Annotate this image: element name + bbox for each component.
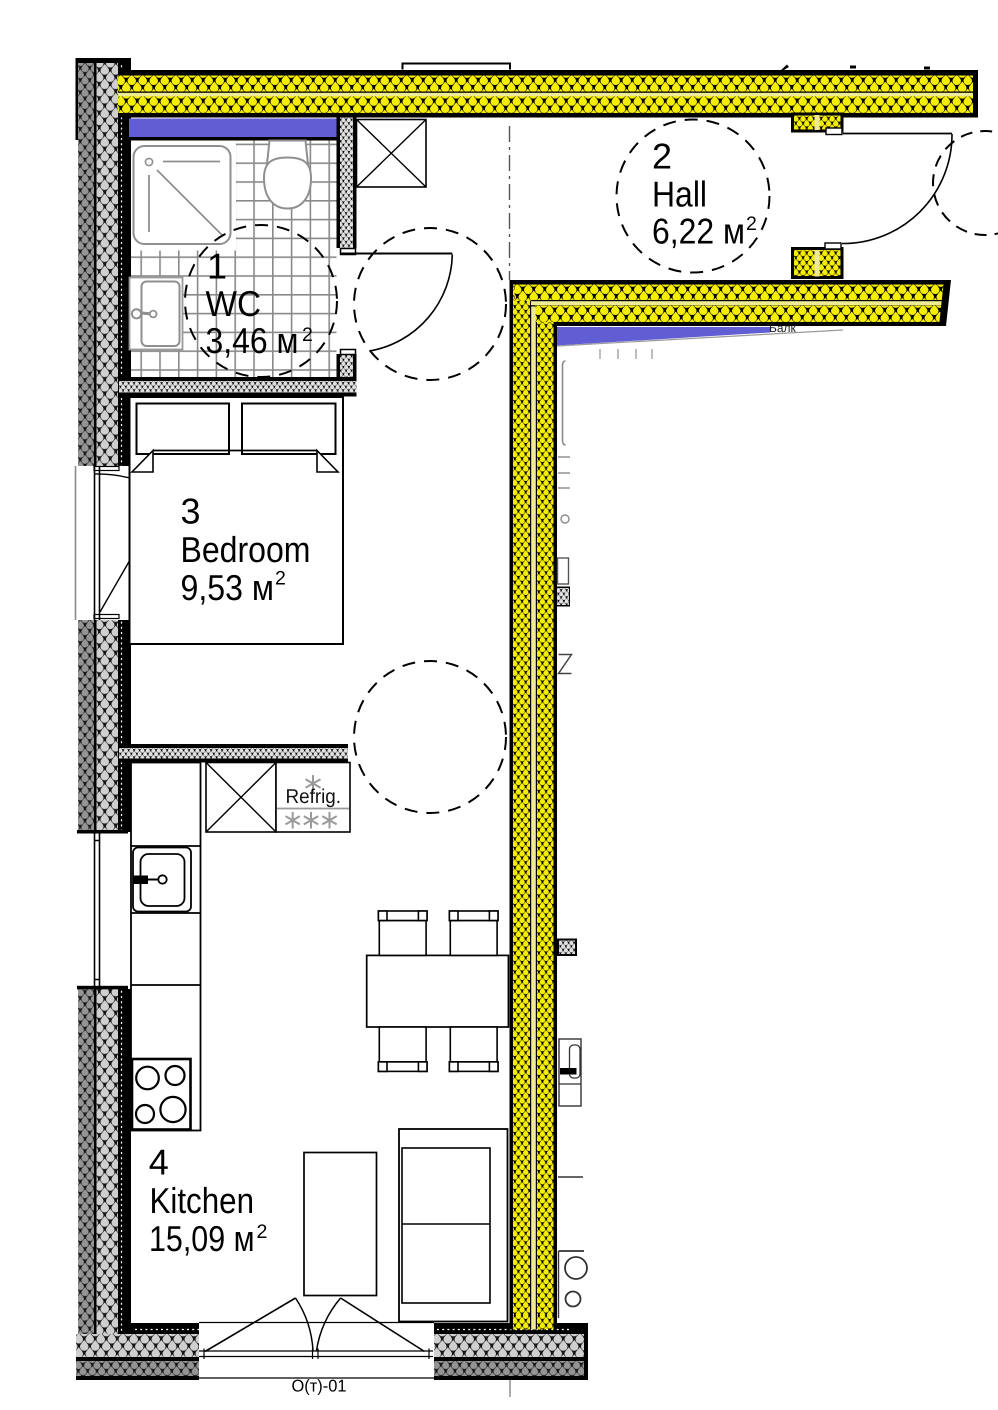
svg-text:Балк: Балк <box>769 321 797 335</box>
svg-text:2: 2 <box>302 324 313 346</box>
svg-text:WC: WC <box>206 283 262 324</box>
svg-text:3: 3 <box>181 491 201 532</box>
svg-text:1: 1 <box>207 246 227 287</box>
svg-text:4: 4 <box>149 1142 169 1183</box>
svg-text:Refrig.: Refrig. <box>286 786 342 808</box>
svg-text:О(т)-01: О(т)-01 <box>292 1377 347 1396</box>
svg-text:Hall: Hall <box>652 174 707 215</box>
svg-text:15,09 м: 15,09 м <box>149 1218 255 1259</box>
svg-text:9,53 м: 9,53 м <box>181 567 275 608</box>
svg-text:Bedroom: Bedroom <box>181 529 311 570</box>
svg-text:2: 2 <box>652 135 672 176</box>
svg-text:2: 2 <box>746 213 757 235</box>
svg-text:6,22 м: 6,22 м <box>652 211 745 252</box>
svg-text:Kitchen: Kitchen <box>150 1180 255 1221</box>
svg-text:2: 2 <box>275 568 286 590</box>
svg-text:2: 2 <box>257 1221 268 1243</box>
svg-text:3,46 м: 3,46 м <box>206 320 299 361</box>
